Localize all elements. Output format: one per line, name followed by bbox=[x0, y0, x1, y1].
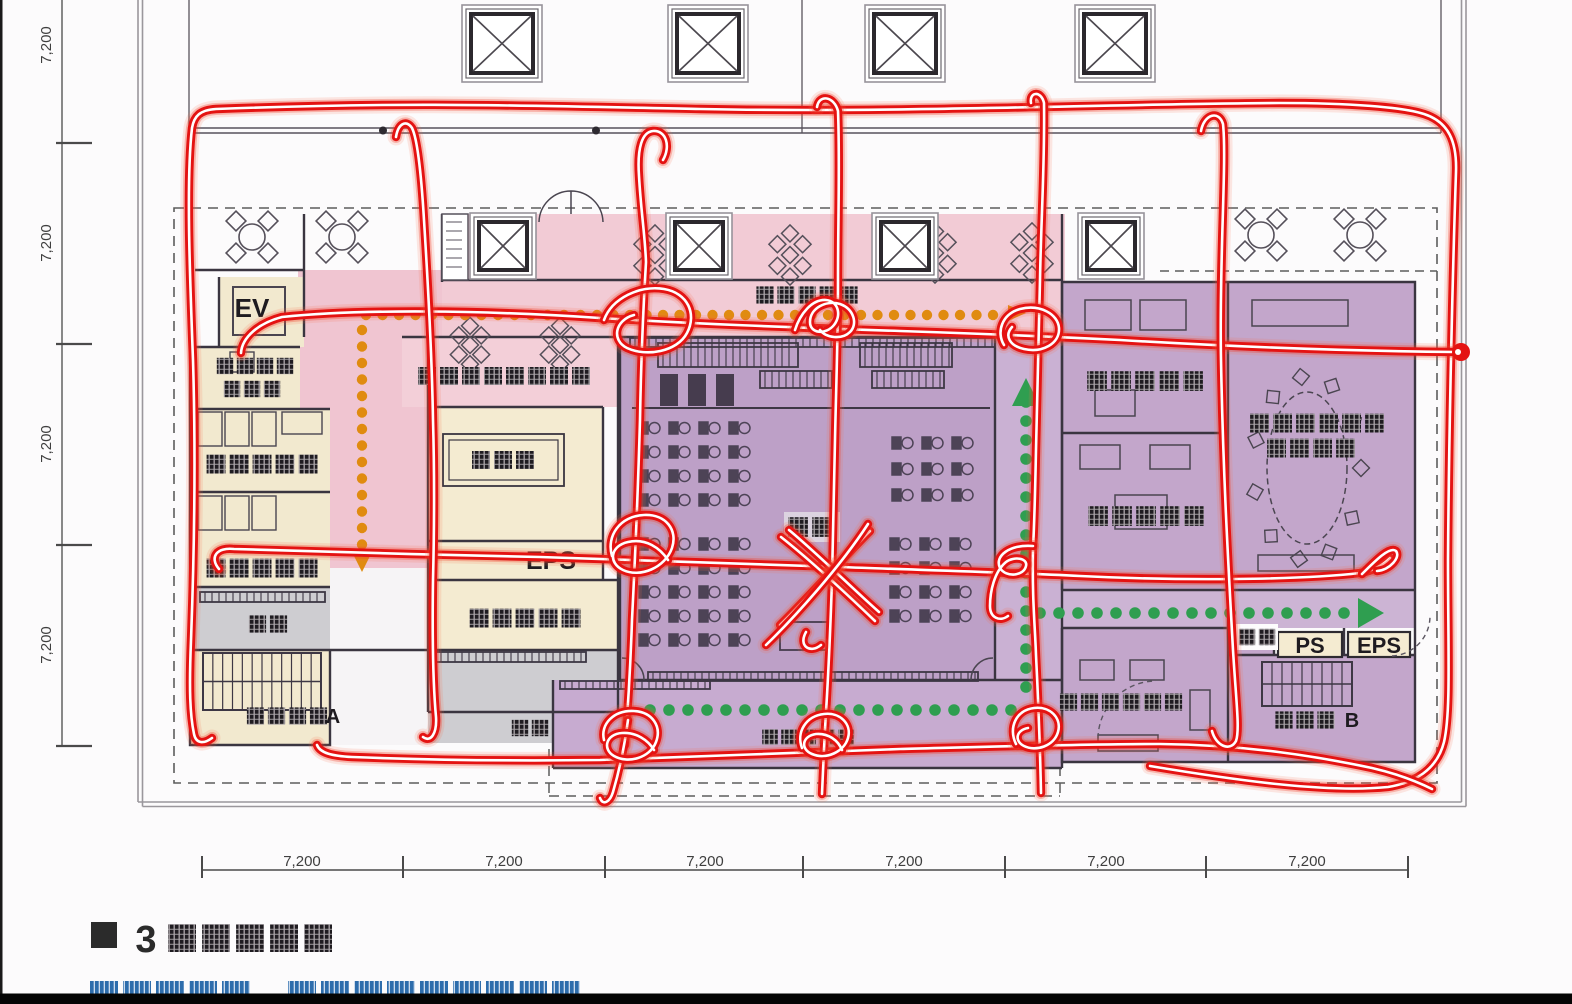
svg-text:7,200: 7,200 bbox=[38, 425, 55, 463]
svg-text:PS: PS bbox=[1295, 633, 1324, 658]
svg-text:7,200: 7,200 bbox=[686, 853, 724, 870]
svg-text:B: B bbox=[1345, 710, 1359, 732]
svg-text:7,200: 7,200 bbox=[38, 26, 55, 64]
svg-text:7,200: 7,200 bbox=[1288, 853, 1326, 870]
svg-text:7,200: 7,200 bbox=[1087, 853, 1125, 870]
svg-text:7,200: 7,200 bbox=[38, 224, 55, 262]
svg-text:7,200: 7,200 bbox=[885, 853, 923, 870]
svg-text:A: A bbox=[326, 706, 340, 728]
svg-text:7,200: 7,200 bbox=[485, 853, 523, 870]
svg-text:3: 3 bbox=[135, 919, 156, 961]
svg-text:7,200: 7,200 bbox=[283, 853, 321, 870]
svg-text:7,200: 7,200 bbox=[38, 626, 55, 664]
svg-text:EPS: EPS bbox=[1357, 633, 1401, 658]
